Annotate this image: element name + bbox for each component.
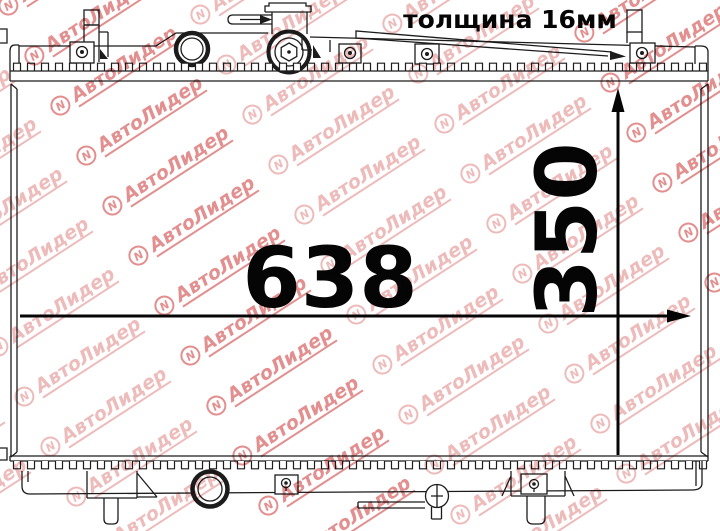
bottom-bracket-keyhole xyxy=(275,475,298,494)
dimension-height: 350 xyxy=(518,88,625,455)
core-bottom-band xyxy=(10,456,708,461)
bottom-bracket-center-dot xyxy=(532,482,536,486)
drawing-canvas: 638 350 толщина 16мм xyxy=(0,0,720,531)
cap-side-bracket-gusset xyxy=(313,45,321,58)
drain-plug xyxy=(426,485,449,520)
left-bracket-pin-dot xyxy=(80,50,84,54)
bottom-tank-bottom-edge xyxy=(30,490,692,494)
height-arrow-head xyxy=(612,88,625,112)
core-right-edge xyxy=(701,84,708,457)
left-post-pin xyxy=(84,10,99,25)
filler-neck-lid xyxy=(265,3,311,12)
bottom-pipe-left xyxy=(104,498,118,524)
cap-center-dot xyxy=(287,50,291,54)
width-arrow-head xyxy=(667,310,691,323)
bottom-pipe-center xyxy=(527,496,545,524)
drain-pipe-side-outline xyxy=(358,502,425,508)
overflow-arrow-head xyxy=(260,15,272,24)
right-bracket-dot xyxy=(640,51,644,55)
drain-plug-stem xyxy=(432,507,442,519)
bottom-tank xyxy=(0,448,702,494)
core-left-edge xyxy=(11,84,17,457)
left-mount-post xyxy=(70,10,108,63)
filler-neck xyxy=(228,3,311,34)
inlet-port-top xyxy=(176,33,208,65)
core-top-teeth xyxy=(12,62,708,71)
radiator-technical-drawing: 638 350 толщина 16мм NАвтоЛидерNАвтоЛиде… xyxy=(0,0,720,531)
bottom-tank-left-end xyxy=(22,471,30,494)
core-bottom-fins xyxy=(10,456,708,470)
height-dimension-value: 350 xyxy=(518,142,616,317)
right-post-pin xyxy=(627,10,642,32)
left-post-gusset xyxy=(100,49,108,59)
top-tank-left-edge-stub xyxy=(0,29,7,43)
right-mount-post xyxy=(627,10,655,63)
bottom-bracket-center xyxy=(502,471,574,496)
core-top-band xyxy=(10,71,708,81)
top-bracket-2 xyxy=(415,44,439,64)
core-bottom-teeth xyxy=(12,461,708,470)
bottom-pipe-center-outline xyxy=(527,496,545,524)
top-bracket-1 xyxy=(339,44,361,63)
drain-pipe-side xyxy=(358,502,425,508)
top-tank-top-edge-left xyxy=(19,33,268,46)
top-bracket-2-dot xyxy=(425,52,429,56)
width-dimension-value: 638 xyxy=(242,229,417,327)
thickness-note: толщина 16мм xyxy=(403,5,617,34)
keyhole-bracket-dot xyxy=(284,481,288,485)
top-bracket-1-dot xyxy=(348,51,352,55)
taper-strip-tip xyxy=(610,51,626,60)
bottom-tank-left-edge-stub xyxy=(0,448,7,460)
core-top-fins xyxy=(10,62,708,81)
right-post-body xyxy=(627,32,642,43)
bottom-pipe-left-outline xyxy=(104,498,118,524)
outlet-port-bottom xyxy=(193,472,228,507)
